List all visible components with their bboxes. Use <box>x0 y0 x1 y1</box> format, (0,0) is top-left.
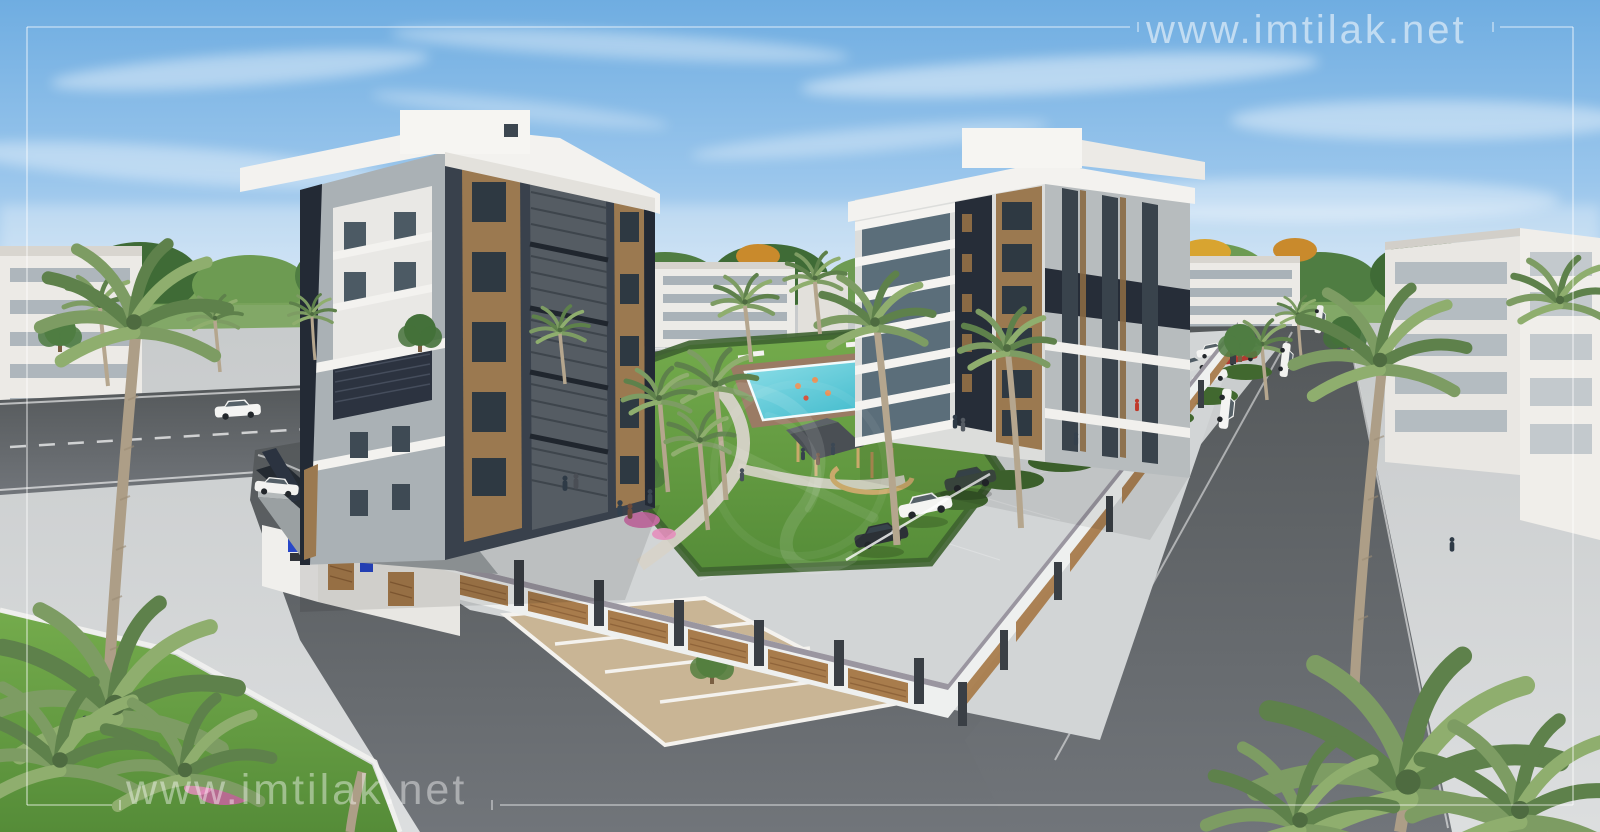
right-penthouse <box>962 128 1082 168</box>
rendered-image: www.imtilak.net www.imtilak.net <box>0 0 1600 832</box>
scene-canvas <box>0 0 1600 832</box>
